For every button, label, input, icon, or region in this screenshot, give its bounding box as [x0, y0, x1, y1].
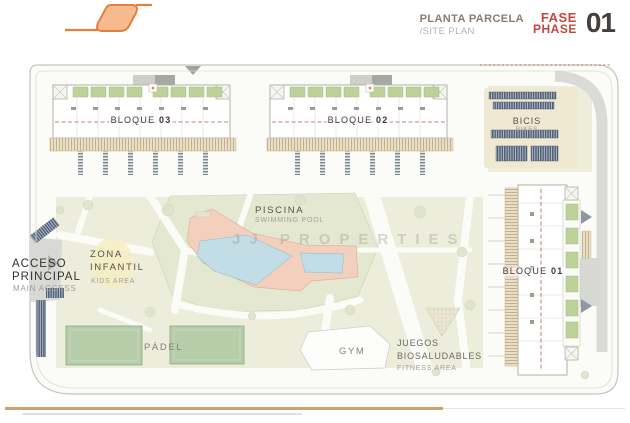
kids-area-label-1: ZONA	[90, 250, 123, 260]
bloque-01-label: BLOQUE 01	[501, 267, 566, 277]
bloque-02-word: BLOQUE	[328, 115, 373, 125]
fine-print-line	[22, 413, 302, 415]
bloque-01-number: 01	[551, 266, 563, 276]
bloque-01-word: BLOQUE	[503, 266, 548, 276]
kids-area-label-2: INFANTIL	[90, 263, 145, 273]
bikes-sublabel: BIKES	[516, 126, 538, 133]
footer-rule-light	[443, 408, 625, 409]
fitness-label-2: BIOSALUDABLES	[397, 352, 482, 362]
bloque-02-label: BLOQUE 02	[326, 116, 391, 126]
site-plan-drawing	[0, 0, 630, 423]
kids-pool-shape	[300, 253, 344, 273]
fitness-sublabel: FITNESS AREA	[397, 365, 457, 373]
crosswalk	[36, 300, 46, 357]
access-label-1: ACCESO	[12, 258, 67, 271]
access-label-2: PRINCIPAL	[12, 271, 81, 284]
access-sublabel: MAIN ACCESS	[13, 285, 76, 294]
bloque-03-label: BLOQUE 03	[109, 116, 174, 126]
bloque-03-word: BLOQUE	[111, 115, 156, 125]
padel-label: PÁDEL	[144, 343, 183, 353]
bloque-03-number: 03	[159, 115, 171, 125]
footer-rule	[5, 407, 443, 410]
site-plan-page: PLANTA PARCELA /SITE PLAN FASE PHASE 01	[0, 0, 630, 423]
bloque-02-number: 02	[376, 115, 388, 125]
pool-label: PISCINA	[255, 206, 304, 216]
gym-label: GYM	[339, 347, 365, 357]
watermark: JJ PROPERTIES	[232, 231, 467, 248]
pool-sublabel: SWIMMING POOL	[255, 217, 324, 225]
fitness-label-1: JUEGOS	[397, 339, 439, 349]
kids-area-sublabel: KIDS AREA	[91, 278, 135, 286]
